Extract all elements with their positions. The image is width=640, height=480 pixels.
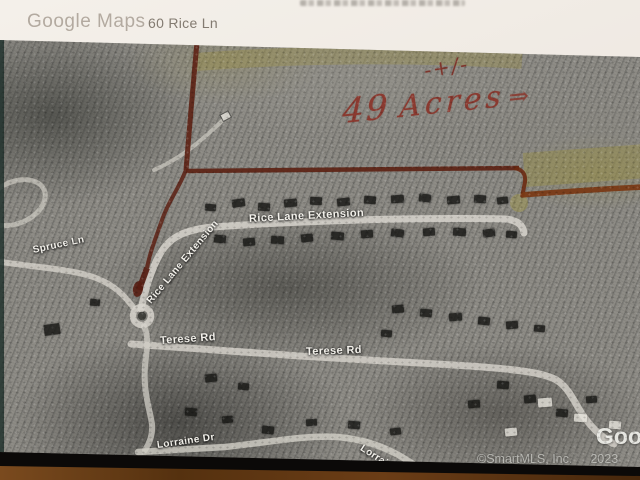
house-footprint bbox=[392, 304, 405, 313]
house-footprint bbox=[423, 227, 436, 236]
highlight-top-band bbox=[196, 55, 522, 62]
copyright-year: 2023 bbox=[590, 452, 618, 466]
house-footprint bbox=[447, 195, 461, 204]
printed-map-photo: Spruce LnRice Lane ExtensionRice Lane Ex… bbox=[0, 0, 640, 480]
roundabout-island bbox=[138, 312, 146, 320]
handwritten-arrow-icon: ⇒ bbox=[508, 81, 533, 112]
house-footprint bbox=[497, 196, 509, 204]
house-footprint bbox=[505, 427, 518, 436]
house-footprint bbox=[238, 383, 250, 391]
house-footprint bbox=[214, 234, 227, 243]
house-footprint bbox=[43, 323, 60, 336]
house-footprint bbox=[381, 330, 393, 338]
house-footprint bbox=[262, 425, 275, 434]
photo-left-edge bbox=[0, 40, 4, 454]
house-footprint bbox=[478, 316, 491, 325]
house-footprint bbox=[205, 373, 218, 382]
house-footprint bbox=[310, 197, 322, 206]
house-footprint bbox=[222, 416, 234, 424]
print-header: Google Maps 60 Rice Ln bbox=[0, 0, 640, 40]
satellite-map: Spruce LnRice Lane ExtensionRice Lane Ex… bbox=[0, 0, 640, 480]
house-footprint bbox=[337, 197, 351, 206]
house-footprint bbox=[185, 408, 198, 417]
house-footprint bbox=[348, 420, 361, 429]
house-footprint bbox=[301, 233, 314, 242]
house-footprint bbox=[90, 299, 101, 307]
house-footprint bbox=[271, 236, 285, 245]
boundary-horizontal bbox=[186, 168, 519, 171]
house-footprint bbox=[364, 195, 377, 204]
house-footprint bbox=[419, 193, 432, 202]
street-label: Terese Rd bbox=[306, 344, 362, 358]
google-watermark: Goo bbox=[596, 423, 640, 450]
house-footprint bbox=[390, 427, 402, 435]
house-footprint bbox=[538, 397, 553, 407]
boundary-right-horizontal bbox=[521, 187, 640, 195]
house-footprint bbox=[361, 230, 374, 239]
house-footprint bbox=[453, 228, 467, 237]
house-footprint bbox=[331, 231, 345, 240]
google-maps-logo: Google Maps bbox=[27, 11, 146, 33]
map-overlay bbox=[0, 0, 640, 480]
house-footprint bbox=[556, 408, 569, 417]
house-footprint bbox=[391, 195, 405, 204]
house-footprint bbox=[205, 204, 217, 212]
boundary-vertical bbox=[186, 42, 197, 170]
road-spruce-ln bbox=[0, 261, 133, 307]
page-title-address: 60 Rice Ln bbox=[148, 15, 218, 31]
house-footprint bbox=[506, 231, 518, 239]
house-footprint bbox=[468, 399, 481, 408]
house-footprint bbox=[243, 237, 256, 246]
house-footprint bbox=[524, 394, 537, 403]
house-footprint bbox=[284, 198, 298, 207]
highlight-right-band bbox=[524, 161, 640, 170]
house-footprint bbox=[391, 228, 405, 237]
road-terese-rd bbox=[131, 344, 614, 444]
print-artifact-smudge bbox=[300, 0, 465, 6]
road-loop-top-left bbox=[0, 180, 45, 226]
house-footprint bbox=[449, 313, 463, 322]
house-footprint bbox=[258, 203, 271, 212]
acreage-number: 49 bbox=[342, 87, 390, 132]
boundary-down-rice-lane bbox=[147, 170, 186, 268]
house-footprint bbox=[586, 396, 597, 404]
house-footprint bbox=[474, 195, 487, 204]
house-footprint bbox=[506, 320, 519, 329]
house-footprint bbox=[306, 419, 317, 427]
house-footprint bbox=[483, 228, 496, 237]
house-footprint bbox=[534, 325, 545, 333]
house-footprint bbox=[420, 308, 433, 317]
house-footprint bbox=[497, 381, 510, 390]
house-footprint bbox=[574, 414, 588, 423]
